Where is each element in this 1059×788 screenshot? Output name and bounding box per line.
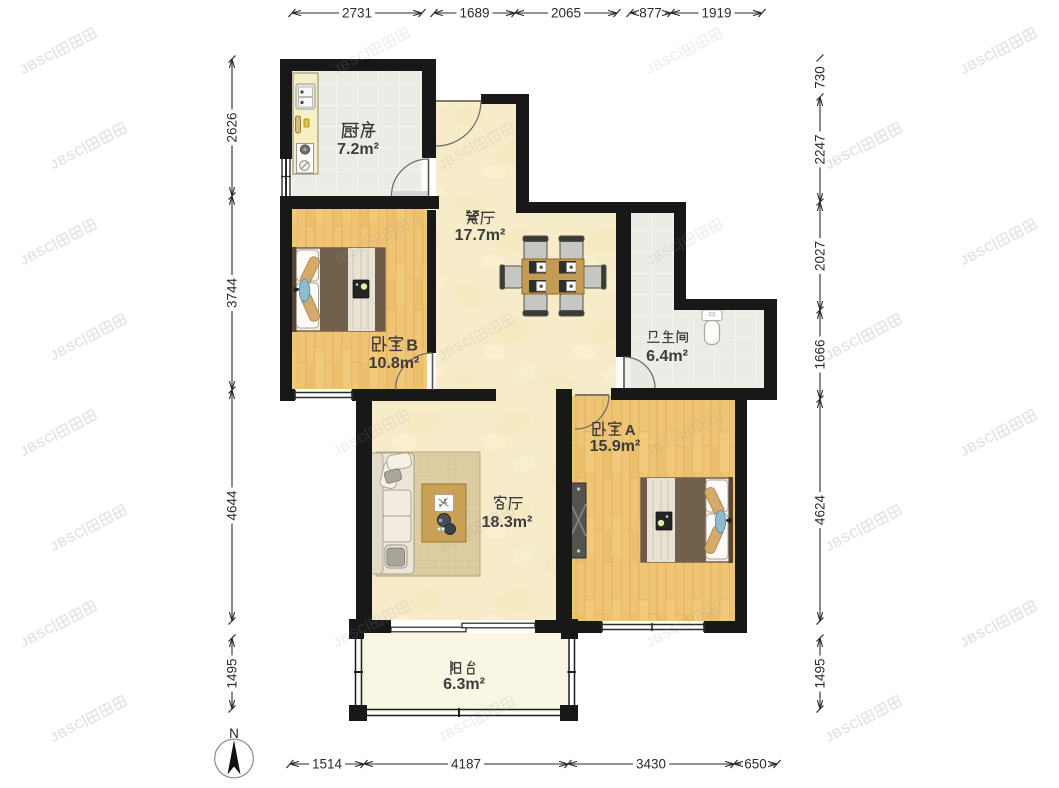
svg-text:JBSC: JBSC <box>48 524 88 555</box>
svg-text:650: 650 <box>744 757 767 772</box>
svg-text:JBSC: JBSC <box>18 47 58 78</box>
svg-text:JBSC: JBSC <box>958 620 998 651</box>
svg-text:JBSC: JBSC <box>18 429 58 460</box>
svg-text:6.4m²: 6.4m² <box>646 348 688 365</box>
svg-text:JBSC: JBSC <box>18 620 58 651</box>
svg-text:17.7m²: 17.7m² <box>455 227 506 244</box>
svg-text:6.3m²: 6.3m² <box>443 676 485 693</box>
svg-text:JBSC: JBSC <box>823 142 863 173</box>
svg-text:JBSC: JBSC <box>48 333 88 364</box>
svg-text:15.9m²: 15.9m² <box>590 438 641 455</box>
svg-text:2731: 2731 <box>342 6 372 21</box>
svg-text:18.3m²: 18.3m² <box>482 514 533 531</box>
svg-text:JBSC: JBSC <box>958 429 998 460</box>
svg-text:2626: 2626 <box>225 112 240 142</box>
svg-text:1514: 1514 <box>312 757 343 772</box>
svg-text:N: N <box>229 726 239 741</box>
svg-text:JBSC: JBSC <box>644 47 684 78</box>
svg-text:JBSC: JBSC <box>958 47 998 78</box>
svg-text:2065: 2065 <box>551 6 581 21</box>
svg-text:4644: 4644 <box>225 490 240 521</box>
svg-text:10.8m²: 10.8m² <box>369 355 420 372</box>
svg-text:1689: 1689 <box>459 6 489 21</box>
svg-text:JBSC: JBSC <box>958 238 998 269</box>
svg-text:JBSC: JBSC <box>18 238 58 269</box>
svg-text:JBSC: JBSC <box>823 715 863 746</box>
svg-text:1495: 1495 <box>225 658 240 688</box>
svg-text:4187: 4187 <box>451 757 481 772</box>
svg-text:877: 877 <box>639 6 662 21</box>
svg-text:3744: 3744 <box>225 277 240 308</box>
svg-text:7.2m²: 7.2m² <box>337 141 379 158</box>
svg-text:730: 730 <box>813 66 828 89</box>
svg-text:B: B <box>406 338 418 355</box>
svg-text:4624: 4624 <box>813 494 828 525</box>
svg-text:2027: 2027 <box>813 241 828 271</box>
svg-text:JBSC: JBSC <box>823 333 863 364</box>
svg-text:A: A <box>625 422 636 439</box>
svg-text:1919: 1919 <box>701 6 731 21</box>
svg-text:3430: 3430 <box>636 757 666 772</box>
svg-text:JBSC: JBSC <box>48 142 88 173</box>
svg-text:JBSC: JBSC <box>48 715 88 746</box>
svg-text:1495: 1495 <box>813 658 828 688</box>
svg-text:JBSC: JBSC <box>436 715 476 746</box>
svg-text:JBSC: JBSC <box>823 524 863 555</box>
